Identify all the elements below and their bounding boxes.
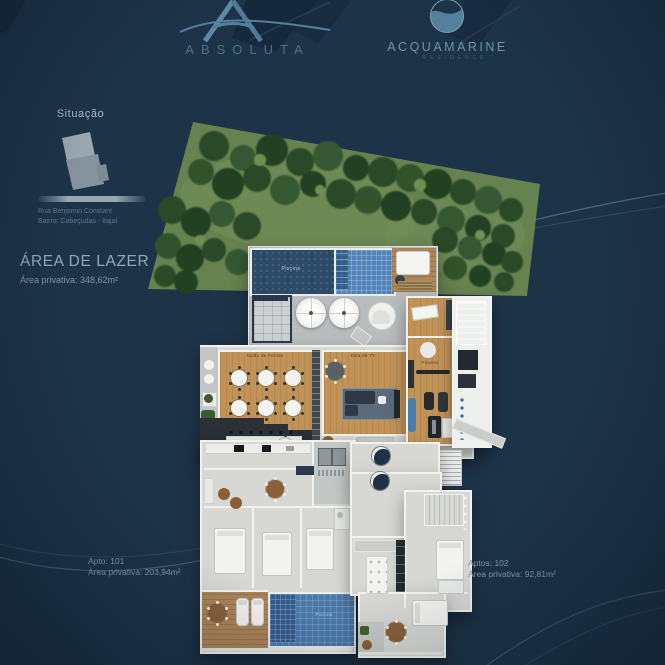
party-table-2 [258,370,274,386]
outdoor-kitchen [252,295,292,343]
apt102-appliances [396,540,405,592]
exercise-bike [424,392,434,410]
sofa-chaise [345,405,358,416]
unit-102-label-block: Aptos: 102 Área privativa: 92,81m² [468,558,618,579]
situacao-title: Situação [38,108,123,120]
balcony-plant [360,626,369,635]
planter-plant [204,394,213,403]
apt102-tub-1 [372,447,390,465]
main-pool [250,248,336,296]
treadmill-belt [432,420,436,434]
leisure-title: ÁREA DE LAZER [20,253,180,271]
pool-umbrella-1 [296,298,326,328]
armchair-2 [230,497,242,509]
cooktop [234,445,244,452]
party-table-6 [285,400,301,416]
apt101-wall-3 [252,508,254,588]
terrace-lounger-2 [251,598,264,626]
unit-101-area: Área privativa: 203,94m² [88,567,238,578]
round-daybed-cushion [372,310,390,324]
dumbbell-rack [408,360,414,388]
bar-stools [226,430,300,435]
apt101-wall-2 [204,506,350,508]
terrace-lounger-1 [236,598,249,626]
outdoor-kitchen-counter [252,295,288,301]
unit-101-label: Apto: 101 [88,556,238,567]
apt101-bath-fixture [337,512,343,518]
acquamarine-logo-icon [410,0,484,37]
daybed [396,251,430,275]
sofa [345,391,375,404]
unit-102-label: Aptos: 102 [468,558,618,569]
elevator-1 [318,448,332,466]
absoluta-wordmark: ABSOLUTA [160,42,335,57]
apt101-bed-3 [306,528,334,570]
balcony-chair-2 [204,374,214,384]
pool-steps [398,281,432,291]
situacao-street: Rua Benjamin Constant [38,207,168,217]
apt101-pool-tiles [270,594,296,642]
closet [424,494,464,526]
terrace-table [208,604,226,622]
apt102-hall [350,442,440,476]
apt102-edge-dots [462,494,468,530]
apt102-tub-2 [371,472,389,490]
situacao-footprint-icon [62,132,109,190]
apt102-counter [354,540,400,552]
balcony-chair [362,640,372,650]
apt102-island [366,556,388,594]
acquamarine-subtitle: RESIDENCE [400,55,510,61]
spa-pool [456,301,486,345]
apt102-bed-2 [412,600,448,626]
apt102-bed-1 [436,540,464,580]
coffee-table [378,396,386,404]
situacao-street-bar [38,196,146,202]
unit-102-area: Área privativa: 92,81m² [468,569,618,580]
elliptical [438,392,448,412]
oven [262,445,271,452]
balcony-chair-1 [204,360,214,370]
corridor-stairs [312,350,320,454]
apt102-rail [358,652,442,655]
leisure-area: Área privativa: 348,62m² [20,275,180,285]
party-table-4 [231,400,247,416]
kitchen-sink [286,446,294,451]
apt102-dining-table [386,622,406,642]
gym-wall [406,336,454,338]
apt102-bath [438,580,464,594]
party-table-1 [231,370,247,386]
core-stairs [318,470,344,476]
apt101-dining-table [266,480,284,498]
apt101-bed-2 [262,532,292,576]
armchair-1 [218,488,230,500]
yoga-mat [408,398,416,432]
situacao-district: Bairro: Cabeçudas - Itajaí [38,217,168,227]
spa-panel-1 [458,350,478,370]
unit-101-label-block: Apto: 101 Área privativa: 203,94m² [88,556,238,577]
acquamarine-wordmark: ACQUAMARINE [380,40,515,54]
party-table-5 [258,400,274,416]
tv-panel [394,390,400,418]
sideboard [204,478,214,504]
apt101-wall-4 [300,508,302,588]
poster-canvas: ABSOLUTA ACQUAMARINE RESIDENCE Situação … [0,0,665,665]
tv-room-table [326,362,344,380]
barbell [416,370,450,374]
party-table-3 [285,370,301,386]
pool-lap-lane [336,250,348,290]
pool-umbrella-2 [329,298,359,328]
apt102-wall-1 [352,536,404,538]
absoluta-logo-icon [160,0,335,42]
elevator-2 [332,448,346,466]
kitchen-counter [206,444,310,454]
apt101-rail [200,648,352,651]
gym-rug [420,342,436,358]
spa-panel-2 [458,374,476,388]
apt101-bath [334,508,350,530]
